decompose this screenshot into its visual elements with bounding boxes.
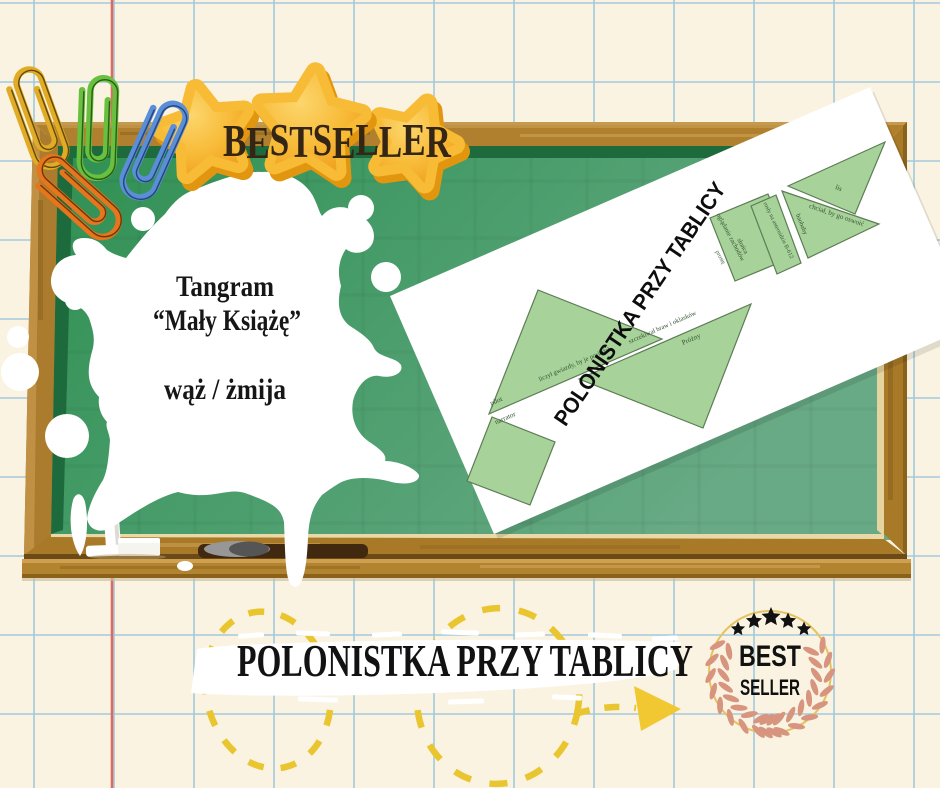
svg-text:“Mały Książę”: “Mały Książę” xyxy=(153,304,301,337)
svg-text:POLONISTKA PRZY TABLICY: POLONISTKA PRZY TABLICY xyxy=(237,635,693,686)
svg-text:Tangram: Tangram xyxy=(176,270,274,303)
svg-text:BESTSELLER: BESTSELLER xyxy=(223,115,451,168)
svg-text:wąż / żmija: wąż / żmija xyxy=(164,373,286,406)
svg-text:SELLER: SELLER xyxy=(740,675,800,700)
svg-text:BEST: BEST xyxy=(739,640,801,673)
